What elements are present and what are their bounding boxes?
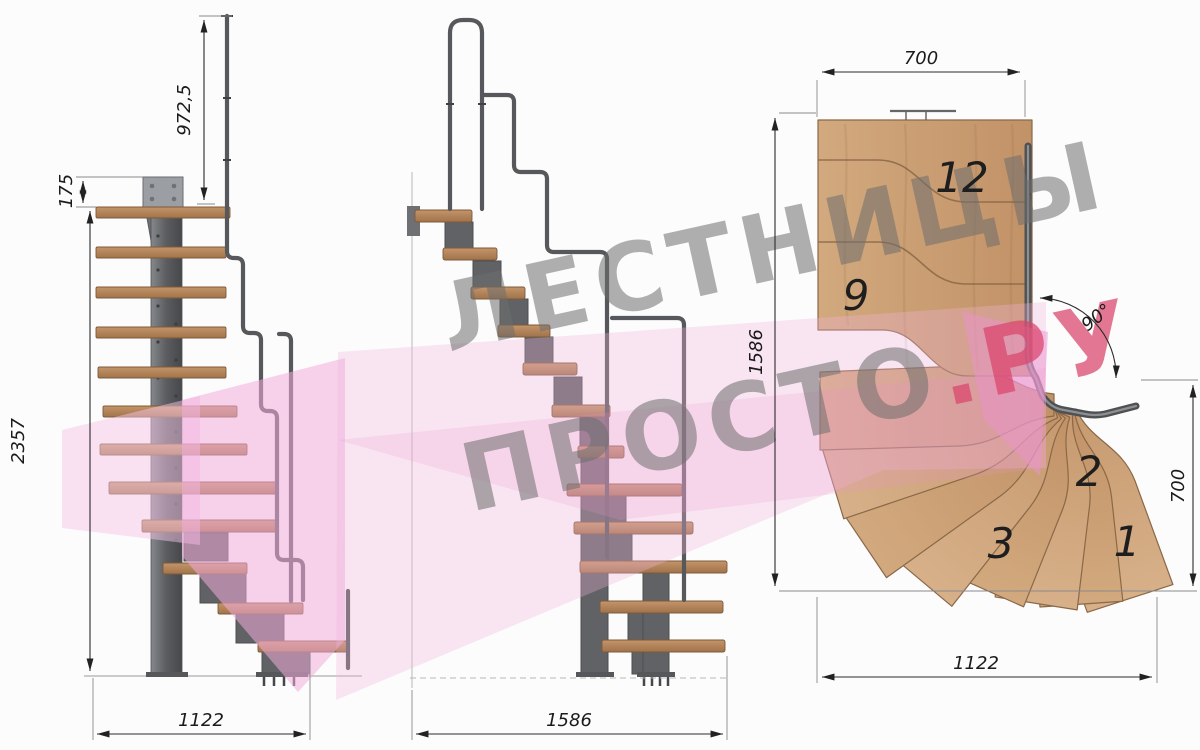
dim-plan-top-width: 700 <box>817 48 1025 117</box>
base-plate <box>146 672 188 677</box>
plan-step-number-2: 2 <box>1076 447 1103 496</box>
base-plate <box>576 672 614 677</box>
dim-label-plan-right-depth: 700 <box>1168 469 1189 503</box>
drawing-canvas: ЛЕСТНИЦЫ ПРОСТО.РУ 972,5 175 2357 112 <box>0 0 1200 750</box>
bolt-hole <box>150 184 155 189</box>
front-step <box>96 327 226 338</box>
dim-bracket-offset: 175 <box>56 174 143 208</box>
dim-label-side-depth: 1586 <box>546 710 592 731</box>
side-step <box>602 640 725 652</box>
dim-plan-bottom-width: 1122 <box>817 597 1157 683</box>
arrow-fold <box>62 396 200 545</box>
side-step <box>600 601 723 613</box>
front-step <box>96 287 226 298</box>
dim-label-plan-top-width: 700 <box>904 48 938 69</box>
bolt-hole <box>172 184 177 189</box>
dim-label-total-height: 2357 <box>8 418 29 464</box>
base-plate <box>637 672 675 677</box>
staircase-drawing: ЛЕСТНИЦЫ ПРОСТО.РУ 972,5 175 2357 112 <box>0 0 1200 750</box>
dim-label-bracket-offset: 175 <box>56 174 77 208</box>
dim-label-plan-bottom-width: 1122 <box>953 653 999 674</box>
plan-step-number-12: 12 <box>935 153 988 202</box>
plan-step-number-9: 9 <box>843 271 870 320</box>
plan-step-number-3: 3 <box>988 519 1015 568</box>
front-step <box>96 247 226 258</box>
dim-label-front-width: 1122 <box>178 710 224 731</box>
side-handrail-loop <box>450 20 482 209</box>
dim-handrail-height: 972,5 <box>174 16 232 204</box>
front-step <box>98 367 226 378</box>
bolt-hole <box>172 197 177 202</box>
bolt-hole <box>150 197 155 202</box>
dim-label-handrail-height: 972,5 <box>174 84 195 136</box>
front-step <box>96 207 230 218</box>
wall-plate <box>143 177 183 207</box>
plan-step-number-1: 1 <box>1114 517 1141 566</box>
side-step <box>415 210 472 222</box>
side-column-2 <box>643 573 669 676</box>
arrow-body <box>182 358 345 692</box>
dim-label-plan-left-depth: 1586 <box>746 329 767 375</box>
dim-side-depth: 1586 <box>412 656 727 740</box>
